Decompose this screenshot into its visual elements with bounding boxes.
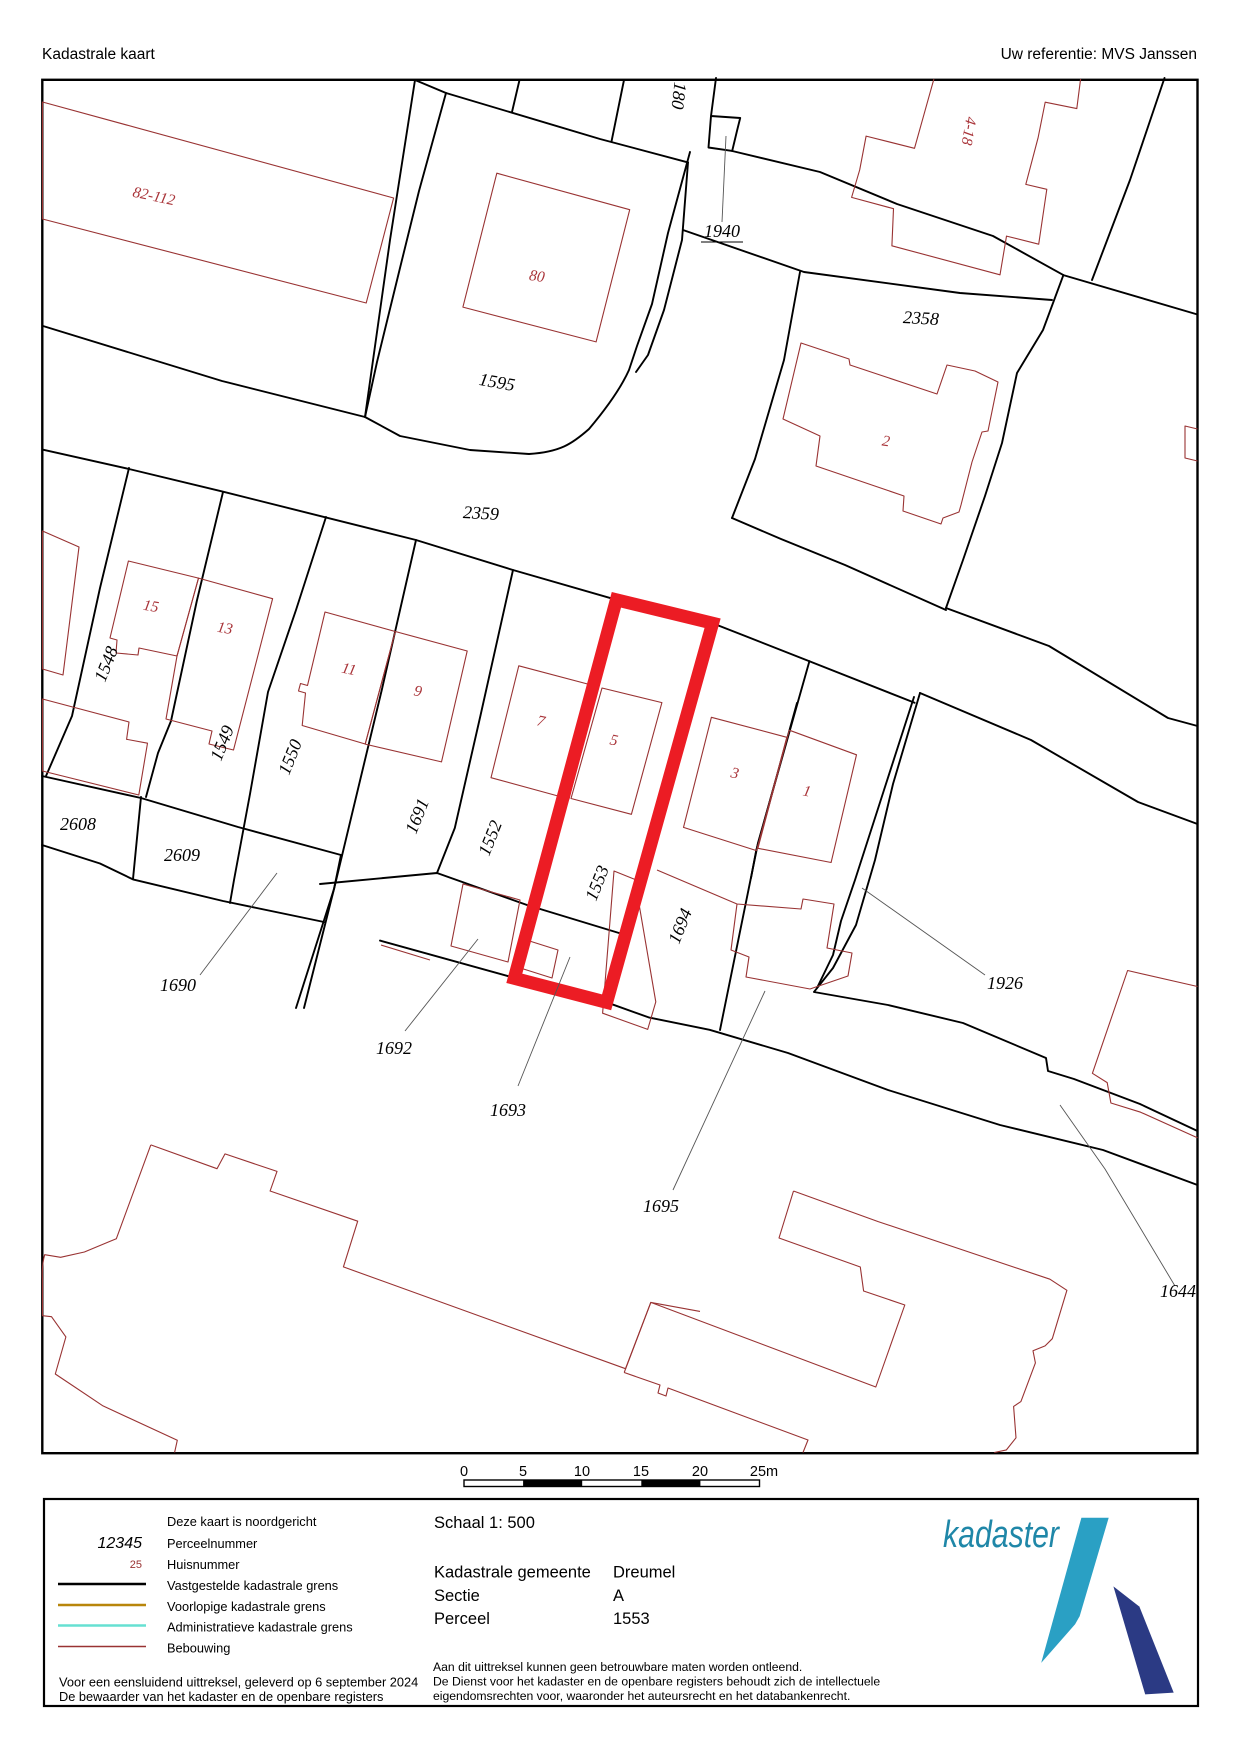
- svg-text:5: 5: [519, 1464, 527, 1480]
- svg-text:Voor een eensluidend uittrekse: Voor een eensluidend uittreksel, gelever…: [59, 1675, 418, 1690]
- svg-text:1690: 1690: [160, 975, 196, 995]
- svg-text:Huisnummer: Huisnummer: [167, 1557, 240, 1572]
- svg-text:9: 9: [412, 682, 423, 700]
- svg-text:1926: 1926: [987, 973, 1023, 993]
- svg-text:1: 1: [801, 782, 812, 800]
- svg-text:Perceelnummer: Perceelnummer: [167, 1536, 258, 1551]
- svg-text:1549: 1549: [206, 723, 238, 764]
- svg-text:80: 80: [528, 267, 546, 286]
- svg-text:3: 3: [728, 764, 740, 782]
- svg-text:20: 20: [692, 1464, 708, 1480]
- svg-text:1550: 1550: [274, 737, 306, 778]
- svg-text:4-18: 4-18: [958, 115, 980, 146]
- svg-text:2609: 2609: [164, 845, 200, 865]
- svg-text:7: 7: [535, 712, 547, 730]
- svg-text:De bewaarder van het kadaster: De bewaarder van het kadaster en de open…: [59, 1689, 383, 1704]
- svg-text:eigendomsrechten voor, waarond: eigendomsrechten voor, waaronder het aut…: [433, 1689, 850, 1703]
- svg-text:1548: 1548: [90, 644, 122, 685]
- svg-text:15: 15: [633, 1464, 649, 1480]
- svg-text:Bebouwing: Bebouwing: [167, 1641, 230, 1656]
- svg-text:1695: 1695: [643, 1196, 679, 1216]
- svg-text:Vastgestelde kadastrale grens: Vastgestelde kadastrale grens: [167, 1578, 338, 1593]
- svg-text:2359: 2359: [463, 502, 500, 524]
- svg-text:Sectie: Sectie: [434, 1587, 480, 1605]
- svg-text:De Dienst voor het kadaster en: De Dienst voor het kadaster en de openba…: [433, 1675, 880, 1689]
- svg-text:5: 5: [608, 731, 619, 749]
- svg-text:1940: 1940: [704, 221, 740, 241]
- svg-text:Uw referentie: MVS Janssen: Uw referentie: MVS Janssen: [1001, 46, 1197, 63]
- svg-text:15: 15: [142, 597, 160, 616]
- svg-text:Kadastrale gemeente: Kadastrale gemeente: [434, 1564, 591, 1582]
- svg-text:1644: 1644: [1160, 1281, 1196, 1301]
- svg-text:0: 0: [460, 1464, 468, 1480]
- svg-text:Voorlopige kadastrale grens: Voorlopige kadastrale grens: [167, 1599, 326, 1614]
- svg-text:1553: 1553: [581, 863, 613, 904]
- svg-text:1693: 1693: [490, 1100, 526, 1120]
- svg-text:kadaster: kadaster: [943, 1514, 1060, 1556]
- svg-text:1552: 1552: [474, 818, 506, 859]
- svg-text:1694: 1694: [664, 906, 696, 947]
- svg-text:82-112: 82-112: [131, 184, 177, 210]
- svg-text:1691: 1691: [401, 796, 433, 837]
- svg-text:1595: 1595: [478, 369, 517, 395]
- svg-text:12345: 12345: [98, 1535, 143, 1552]
- svg-text:10: 10: [574, 1464, 590, 1480]
- svg-text:Administratieve kadastrale gre: Administratieve kadastrale grens: [167, 1620, 353, 1635]
- svg-text:1692: 1692: [376, 1038, 412, 1058]
- svg-text:Schaal 1: 500: Schaal 1: 500: [434, 1514, 535, 1532]
- svg-text:2608: 2608: [60, 814, 96, 834]
- svg-text:2: 2: [881, 433, 891, 451]
- svg-text:2358: 2358: [903, 307, 940, 329]
- svg-text:180: 180: [667, 81, 690, 110]
- svg-text:Deze kaart is noordgericht: Deze kaart is noordgericht: [167, 1514, 317, 1529]
- svg-text:Kadastrale kaart: Kadastrale kaart: [42, 46, 156, 63]
- svg-text:1553: 1553: [613, 1610, 650, 1628]
- svg-text:Perceel: Perceel: [434, 1610, 490, 1628]
- svg-text:Dreumel: Dreumel: [613, 1564, 675, 1582]
- svg-text:25m: 25m: [750, 1464, 778, 1480]
- svg-text:A: A: [613, 1587, 624, 1605]
- svg-text:Aan dit uittreksel kunnen geen: Aan dit uittreksel kunnen geen betrouwba…: [433, 1660, 802, 1674]
- svg-text:11: 11: [340, 660, 358, 680]
- svg-text:13: 13: [216, 619, 234, 638]
- svg-text:25: 25: [130, 1559, 142, 1571]
